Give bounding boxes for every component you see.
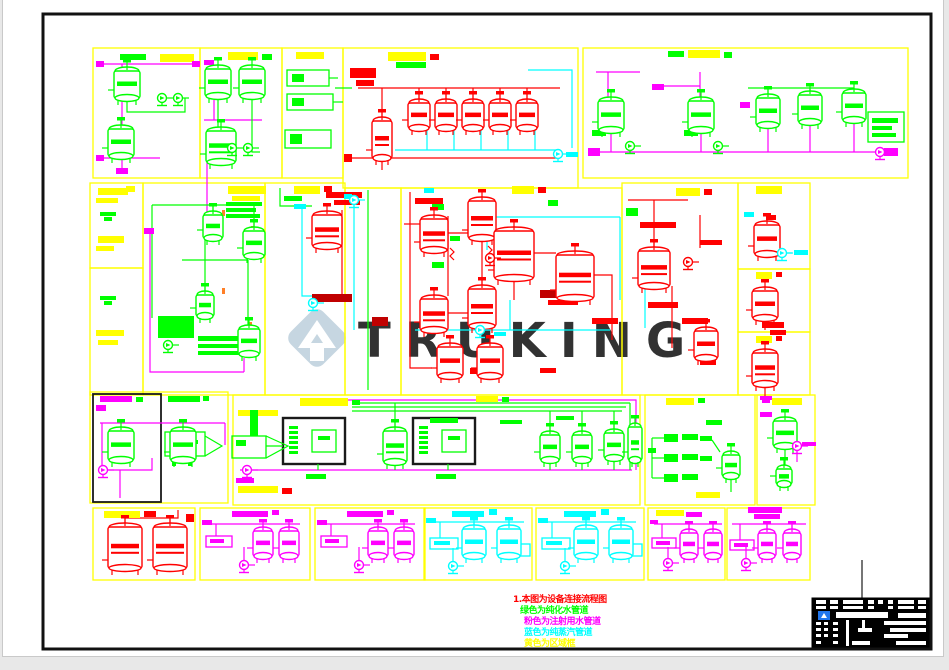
label-bar	[350, 68, 376, 78]
vessel-symbol	[550, 243, 594, 305]
section-box	[645, 395, 755, 505]
label-bar	[538, 518, 548, 523]
vessel-symbol	[698, 521, 722, 563]
label-bar	[325, 539, 339, 543]
title-block-cell	[824, 634, 828, 637]
legend-line: 1.本图为设备连接流程图	[513, 593, 607, 605]
label-bar	[96, 198, 118, 203]
label-bar	[426, 518, 436, 523]
title-block-cell	[846, 620, 849, 646]
label-bar	[203, 396, 209, 401]
label-bar	[432, 262, 444, 268]
label-bar	[96, 155, 104, 161]
vessel-symbol	[197, 203, 223, 245]
vessel-symbol	[456, 517, 486, 563]
label-bar	[318, 436, 330, 440]
equipment-block	[312, 430, 336, 452]
vessel-symbol	[603, 517, 633, 563]
title-block-cell	[830, 606, 838, 609]
label-bar	[282, 488, 292, 494]
label-bar	[250, 410, 258, 436]
label-bar	[236, 440, 246, 446]
label-bar	[434, 541, 450, 545]
vessel-symbol	[746, 279, 778, 325]
vessel-symbol	[750, 86, 780, 132]
title-block-cell	[816, 634, 821, 637]
title-block-cell	[868, 606, 874, 609]
label-bar	[601, 509, 609, 515]
label-bar	[724, 52, 732, 58]
label-bar	[100, 396, 132, 402]
title-block-cell	[816, 606, 826, 609]
label-bar	[744, 212, 754, 217]
title-block-cell	[878, 600, 883, 604]
label-bar	[98, 188, 128, 195]
label-bar	[640, 222, 676, 228]
pump-symbol	[354, 561, 370, 573]
section-box	[282, 48, 343, 178]
label-bar	[872, 126, 892, 130]
label-bar	[448, 436, 460, 440]
label-bar	[512, 186, 534, 194]
label-bar	[96, 330, 124, 336]
label-bar	[700, 240, 722, 245]
title-block-cell	[830, 600, 838, 604]
title-block-cell	[898, 600, 914, 604]
vessel-symbol	[510, 91, 538, 135]
pump-symbol	[777, 249, 793, 261]
label-bar	[740, 102, 750, 108]
vessel-symbol	[108, 59, 140, 105]
vessel-symbol	[598, 421, 624, 465]
pipe-line	[712, 440, 720, 452]
vessel-symbol	[273, 519, 299, 563]
label-bar	[96, 61, 104, 67]
label-bar	[648, 448, 656, 453]
label-bar	[650, 520, 658, 524]
label-bar	[104, 301, 112, 305]
pipe-line	[266, 436, 288, 458]
label-bar	[226, 214, 260, 218]
title-block-cell	[858, 628, 872, 632]
vessel-symbol	[777, 521, 801, 563]
label-bar	[419, 431, 428, 434]
title-block-cell	[816, 628, 821, 631]
label-bar	[116, 168, 128, 174]
vessel-symbol	[102, 515, 142, 575]
label-bar	[706, 420, 722, 425]
label-bar	[419, 446, 428, 449]
label-bar	[676, 188, 700, 196]
label-bar	[294, 186, 320, 194]
label-bar	[502, 397, 509, 402]
label-bar	[136, 397, 143, 402]
cad-viewer-canvas[interactable]: TRUKING 1.本图为设备连接流程图绿色为纯化水管道粉色为注射用水管道蓝色为…	[3, 0, 943, 656]
label-bar	[762, 398, 770, 403]
pump-symbol	[448, 562, 464, 574]
vessel-symbol	[748, 213, 780, 261]
label-bar	[430, 418, 458, 423]
pipe-line	[205, 436, 222, 456]
label-bar	[668, 51, 684, 57]
title-block-cell	[816, 622, 821, 625]
label-bar	[158, 316, 194, 338]
title-block-cell	[816, 600, 826, 604]
label-bar	[294, 204, 306, 209]
title-block-cell	[918, 606, 926, 609]
title-block-cell	[833, 634, 838, 637]
label-bar	[656, 510, 684, 516]
vessel-symbol	[752, 521, 776, 563]
label-bar	[424, 188, 434, 193]
label-bar	[648, 302, 678, 308]
label-bar	[222, 288, 225, 294]
label-bar	[588, 148, 600, 156]
label-bar	[98, 340, 118, 345]
label-bar	[262, 54, 272, 60]
vessel-symbol	[366, 109, 392, 165]
vessel-symbol	[199, 57, 231, 103]
label-bar	[546, 541, 562, 545]
title-block-cell	[862, 620, 865, 628]
vessel-symbol	[770, 457, 792, 491]
legend-line: 粉色为注射用水管道	[524, 615, 601, 627]
label-bar	[292, 98, 304, 106]
label-bar	[372, 317, 388, 326]
label-bar	[700, 456, 712, 461]
vessel-symbol	[534, 423, 560, 467]
pump-symbol	[163, 341, 179, 353]
label-bar	[289, 446, 298, 449]
vessel-symbol	[456, 91, 484, 135]
label-bar	[430, 54, 439, 60]
label-bar	[794, 250, 808, 255]
section-box	[90, 183, 143, 268]
pump-symbol	[663, 559, 679, 571]
label-bar	[476, 396, 498, 402]
vessel-symbol	[491, 517, 521, 563]
label-bar	[272, 510, 279, 515]
label-bar	[204, 60, 214, 65]
label-bar	[300, 398, 348, 406]
label-bar	[232, 196, 260, 201]
label-bar	[296, 52, 324, 59]
label-bar	[210, 539, 224, 543]
label-bar	[289, 441, 298, 444]
label-bar	[396, 62, 426, 68]
label-bar	[292, 74, 304, 82]
label-bar	[419, 436, 428, 439]
label-bar	[290, 134, 302, 144]
label-bar	[98, 236, 124, 243]
label-bar	[144, 511, 156, 517]
equipment-block	[442, 430, 466, 452]
label-bar	[772, 398, 802, 405]
vessel-symbol	[429, 91, 457, 135]
label-bar	[626, 208, 638, 216]
pipe-line	[252, 96, 260, 152]
label-bar	[236, 478, 254, 483]
vessel-symbol	[632, 239, 670, 293]
label-bar	[388, 52, 426, 61]
equipment-block	[232, 436, 266, 458]
title-block-cell	[824, 628, 828, 631]
label-bar	[664, 474, 678, 482]
title-block-cell	[843, 606, 863, 609]
vessel-symbol	[247, 519, 273, 563]
vessel-symbol	[306, 203, 342, 253]
label-bar	[760, 412, 772, 417]
label-bar	[387, 510, 394, 515]
label-bar	[104, 217, 112, 221]
label-bar	[347, 511, 383, 517]
label-bar	[704, 189, 712, 195]
label-bar	[776, 272, 782, 277]
label-bar	[317, 520, 327, 525]
legend-line: 蓝色为纯蒸汽管道	[524, 626, 593, 638]
label-bar	[324, 186, 332, 192]
title-block	[812, 598, 930, 648]
vessel-symbol	[102, 117, 134, 163]
vessel-symbol	[792, 83, 822, 129]
title-block-cell	[884, 634, 908, 638]
watermark-text: TRUKING	[358, 313, 699, 369]
label-bar	[100, 296, 116, 300]
vessel-symbol	[164, 419, 196, 467]
label-bar	[126, 186, 135, 192]
label-bar	[160, 54, 194, 62]
vessel-symbol	[568, 517, 598, 563]
label-bar	[776, 336, 782, 341]
label-bar	[226, 208, 256, 212]
label-bar	[192, 61, 200, 67]
vessel-symbol	[716, 443, 740, 483]
label-bar	[538, 187, 546, 193]
label-bar	[698, 398, 705, 403]
title-block-cell	[843, 600, 863, 604]
label-bar	[656, 541, 670, 545]
label-bar	[682, 454, 698, 460]
vessel-symbol	[462, 189, 496, 245]
label-bar	[238, 486, 278, 493]
title-block-cell	[833, 628, 838, 631]
label-bar	[748, 507, 782, 513]
label-bar	[144, 228, 154, 234]
process-flow-diagram[interactable]: TRUKING 1.本图为设备连接流程图绿色为纯化水管道粉色为注射用水管道蓝色为…	[3, 0, 943, 656]
label-bar	[556, 416, 574, 420]
label-bar	[700, 436, 712, 441]
label-bar	[356, 80, 374, 86]
label-bar	[872, 118, 898, 123]
title-block-cell	[896, 641, 926, 645]
pump-symbol	[239, 561, 255, 573]
label-bar	[306, 474, 326, 479]
label-bar	[666, 398, 694, 405]
label-bar	[450, 236, 460, 241]
pump-symbol	[242, 466, 258, 478]
label-bar	[96, 405, 106, 411]
label-bar	[540, 368, 556, 373]
vessel-symbol	[402, 91, 430, 135]
pump-symbol	[683, 258, 699, 270]
label-bar	[756, 186, 782, 194]
drawing-notes-legend: 1.本图为设备连接流程图绿色为纯化水管道粉色为注射用水管道蓝色为纯蒸汽管道黄色为…	[513, 593, 607, 649]
label-bar	[872, 133, 896, 137]
title-block-cell	[890, 628, 926, 632]
label-bar	[419, 426, 428, 429]
vessel-symbol	[237, 219, 265, 263]
pump-symbol	[349, 196, 365, 208]
label-bar	[289, 451, 298, 454]
pump-symbol	[157, 94, 173, 106]
title-block-cell	[888, 600, 893, 604]
vessel-symbol	[622, 415, 642, 467]
label-bar	[688, 50, 720, 58]
label-bar	[664, 454, 678, 462]
label-bar	[770, 330, 786, 335]
title-block-cell	[898, 606, 914, 609]
pump-symbol	[243, 144, 259, 156]
label-bar	[652, 84, 664, 90]
label-bar	[686, 512, 702, 517]
label-bar	[489, 509, 497, 515]
vessel-symbol	[414, 207, 448, 257]
label-bar	[228, 186, 266, 194]
label-bar	[664, 434, 678, 442]
title-block-cell	[888, 606, 893, 609]
label-bar	[564, 511, 596, 517]
title-block-cell	[824, 622, 828, 625]
vessel-symbol	[362, 519, 388, 563]
vessel-symbol	[674, 521, 698, 563]
legend-line: 绿色为纯化水管道	[520, 604, 589, 616]
label-bar	[696, 492, 720, 498]
label-bar	[226, 202, 262, 206]
label-bar	[756, 272, 772, 279]
vessel-symbol	[483, 91, 511, 135]
vessel-symbol	[388, 519, 414, 563]
label-bar	[289, 436, 298, 439]
title-block-cell	[852, 641, 870, 645]
truking-logo-icon	[284, 305, 349, 370]
title-block-cell	[898, 613, 926, 618]
label-bar	[754, 514, 780, 519]
label-bar	[186, 514, 194, 522]
label-bar	[436, 474, 456, 479]
pipe-line	[302, 208, 312, 296]
label-bar	[500, 420, 522, 424]
label-bar	[548, 200, 558, 206]
label-bar	[419, 451, 428, 454]
label-bar	[289, 426, 298, 429]
title-block-cell	[884, 621, 926, 625]
pump-symbol	[741, 559, 757, 571]
vessel-symbol	[233, 57, 265, 103]
label-bar	[682, 474, 698, 480]
title-block-cell	[833, 641, 838, 644]
label-bar	[232, 511, 268, 517]
label-bar	[762, 322, 784, 328]
vessel-symbol	[147, 515, 187, 575]
label-bar	[100, 212, 116, 216]
vessel-symbol	[682, 89, 714, 137]
label-bar	[168, 396, 200, 402]
label-bar	[344, 154, 352, 162]
legend-line: 黄色为区域框	[524, 637, 576, 649]
label-bar	[682, 434, 698, 440]
label-bar	[415, 198, 443, 204]
label-bar	[734, 543, 748, 547]
pipe-line	[450, 248, 454, 260]
label-bar	[494, 332, 506, 336]
vessel-symbol	[102, 419, 134, 467]
pump-symbol	[98, 466, 114, 478]
title-block-cell	[836, 612, 888, 618]
title-block-cell	[816, 641, 821, 644]
title-block-cell	[918, 600, 926, 604]
label-bar	[202, 520, 212, 525]
label-bar	[96, 246, 114, 251]
label-bar	[419, 441, 428, 444]
label-bar	[352, 400, 360, 405]
vessel-symbol	[377, 419, 407, 469]
pump-symbol	[173, 94, 189, 106]
label-bar	[452, 511, 484, 517]
label-bar	[284, 196, 302, 201]
label-bar	[312, 294, 352, 302]
title-block-cell	[833, 622, 838, 625]
label-bar	[289, 431, 298, 434]
pump-symbol	[560, 562, 576, 574]
label-bar	[592, 318, 618, 324]
title-block-cell	[868, 600, 874, 604]
vessel-symbol	[746, 341, 778, 391]
vessel-symbol	[566, 423, 592, 467]
